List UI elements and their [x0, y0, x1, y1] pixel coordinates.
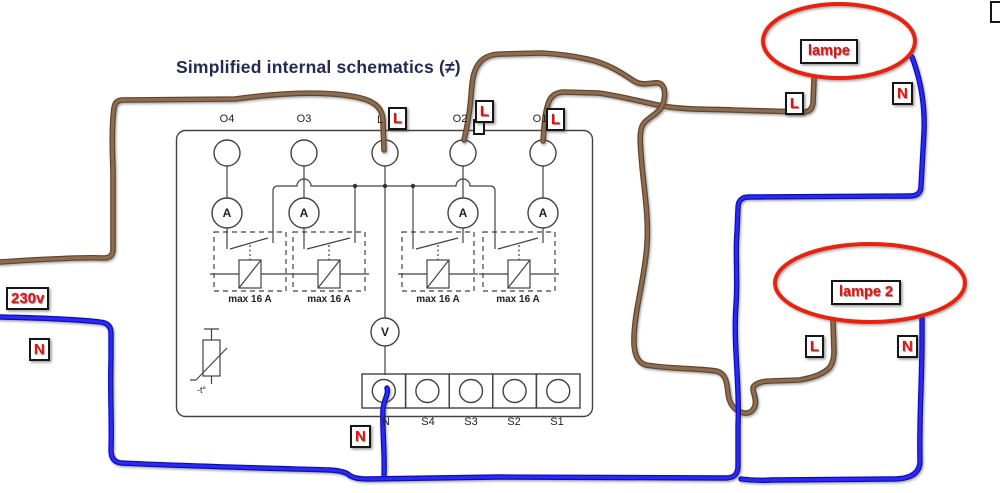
clipped-corner-badge [990, 1, 1000, 23]
terminal-label-l: L [377, 114, 383, 126]
ammeter-3-letter: A [459, 206, 468, 220]
live-wire-feed-230v [0, 93, 384, 262]
lamp2-label: lampe 2 [831, 280, 901, 305]
fuse-rating-3: max 16 A [416, 294, 460, 305]
wiring-diagram: Simplified internal schematics (≠) O4 O3… [0, 0, 1000, 493]
neutral-wire-terminal-drop [383, 388, 388, 475]
terminal-s1 [547, 380, 570, 403]
live-wire-o2-to-lamp2 [464, 53, 834, 413]
voltmeter-letter: V [381, 325, 389, 339]
fuse-rating-2: max 16 A [307, 294, 351, 305]
terminal-label-s4: S4 [421, 416, 434, 428]
terminal-s4 [416, 380, 439, 403]
terminal-s3 [460, 380, 483, 403]
neutral-badge-terminal: N [350, 425, 371, 448]
thermistor-label: -t° [197, 385, 206, 395]
terminal-label-s1: S1 [550, 416, 563, 428]
neutral-badge-lamp2: N [897, 335, 918, 358]
ammeter-1-letter: A [223, 206, 232, 220]
live-badge-lamp1: L [785, 92, 804, 115]
thermistor-symbol [190, 329, 227, 384]
terminal-o1 [530, 140, 556, 166]
lamp1-label: lampe [800, 39, 858, 64]
terminal-o3 [291, 140, 317, 166]
terminal-label-o4: O4 [220, 113, 235, 125]
terminal-label-o3: O3 [297, 113, 312, 125]
terminal-label-o2: O2 [453, 113, 468, 125]
switch-blades [230, 238, 538, 249]
bus-taps [355, 186, 413, 249]
fuse-rating-1: max 16 A [228, 294, 272, 305]
ammeter-4-letter: A [539, 206, 548, 220]
live-badge-terminal-o1: L [546, 108, 565, 131]
live-wire-o1-to-lamp1 [543, 79, 814, 141]
terminal-o4 [214, 140, 240, 166]
live-badge-terminal-o2: L [475, 100, 494, 123]
live-badge-lamp2: L [805, 335, 824, 358]
terminal-label-s2: S2 [507, 416, 520, 428]
live-badge-terminal-l: L [388, 107, 407, 130]
terminal-s2 [503, 380, 526, 403]
supply-voltage-badge: 230v [6, 287, 49, 310]
ammeter-2-letter: A [300, 206, 309, 220]
diagram-title: Simplified internal schematics (≠) [176, 57, 461, 78]
terminal-label-n: N [382, 416, 390, 428]
neutral-badge-lamp1: N [892, 82, 913, 105]
terminal-label-s3: S3 [464, 416, 477, 428]
diagram-canvas [0, 0, 1000, 493]
bottom-terminal-row [362, 374, 580, 408]
fuse-rating-4: max 16 A [496, 294, 540, 305]
neutral-badge-supply: N [29, 338, 50, 361]
device-box-schematic [177, 131, 593, 417]
terminal-o2 [450, 140, 476, 166]
